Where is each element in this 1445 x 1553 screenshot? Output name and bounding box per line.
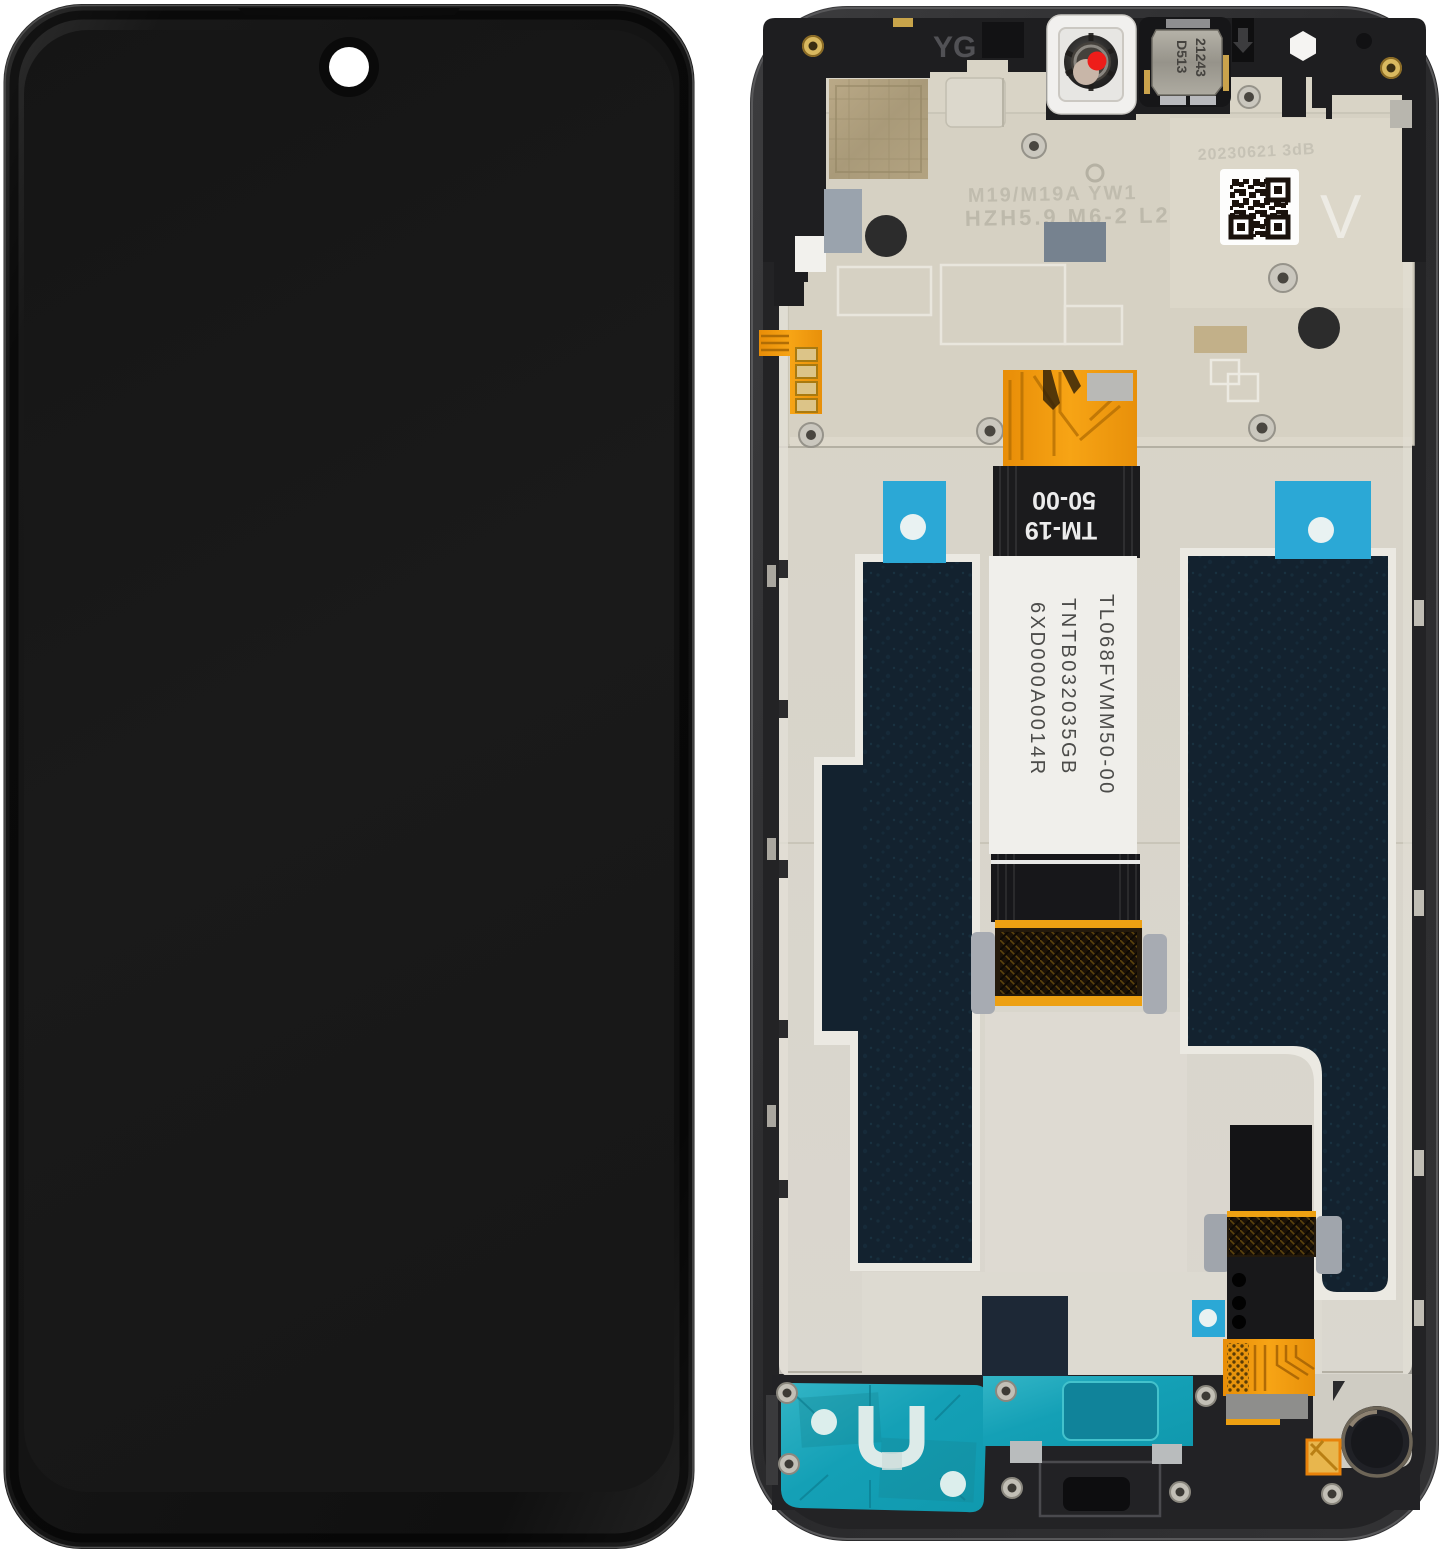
svg-text:6XD000A0014R: 6XD000A0014R	[1026, 602, 1048, 777]
svg-text:TL068FVMM50-00: TL068FVMM50-00	[1095, 594, 1117, 796]
svg-text:TNTB032035GB: TNTB032035GB	[1057, 598, 1079, 776]
svg-text:YG: YG	[933, 31, 976, 64]
svg-text:TM-19: TM-19	[1025, 516, 1097, 544]
svg-text:D513: D513	[1174, 40, 1190, 74]
svg-text:50-00: 50-00	[1032, 486, 1096, 514]
svg-text:V: V	[1320, 183, 1362, 252]
svg-text:21243: 21243	[1193, 38, 1209, 77]
